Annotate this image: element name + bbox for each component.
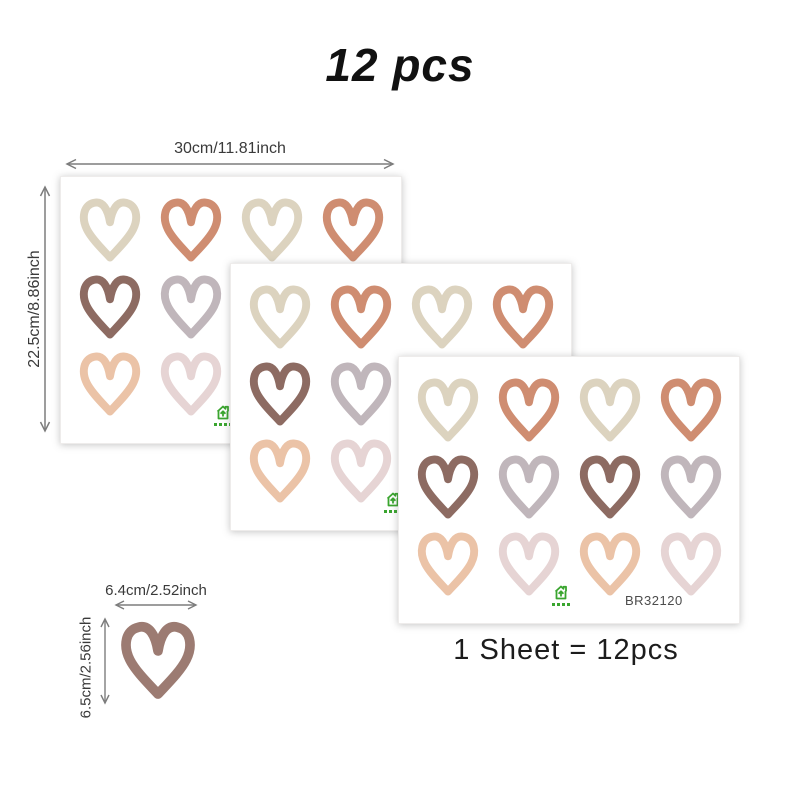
heart-sticker-beige <box>243 279 317 351</box>
heart-sticker-brown <box>573 449 647 521</box>
heart-width-label: 6.4cm/2.52inch <box>96 582 216 599</box>
heart-sticker-terracotta <box>324 279 398 351</box>
product-infographic: 12 pcs 30cm/11.81inch 22.5cm/8.86inch <box>0 0 800 800</box>
hearts-grid <box>407 372 731 603</box>
heart-sticker-terracotta <box>492 372 566 444</box>
sheet-width-label: 30cm/11.81inch <box>60 140 400 158</box>
heart-sticker-mauve <box>654 449 728 521</box>
logo-wordmark <box>549 603 573 606</box>
sheet-footer: BR32120 <box>399 581 739 615</box>
piece-count-title: 12 pcs <box>0 38 800 92</box>
single-heart-sticker <box>114 612 202 704</box>
sticker-sheet-3: BR32120 <box>398 356 740 624</box>
heart-width-arrow <box>110 599 202 611</box>
heart-sticker-beige <box>411 372 485 444</box>
heart-sticker-mauve <box>324 356 398 428</box>
heart-sticker-mauve <box>154 269 228 341</box>
sheet-height-arrow <box>39 180 51 438</box>
house-logo-icon <box>551 583 571 601</box>
heart-sticker-brown <box>73 269 147 341</box>
heart-sticker-terracotta <box>486 279 560 351</box>
heart-sticker-terracotta <box>316 192 390 264</box>
heart-sticker-terracotta <box>154 192 228 264</box>
heart-height-label: 6.5cm/2.56inch <box>78 612 95 724</box>
sheet-count-note: 1 Sheet = 12pcs <box>416 634 716 667</box>
heart-sticker-beige <box>73 192 147 264</box>
product-code: BR32120 <box>625 593 683 608</box>
heart-sticker-brown <box>243 356 317 428</box>
heart-sticker-mauve <box>492 449 566 521</box>
heart-height-arrow <box>99 613 111 709</box>
brand-logo <box>549 583 573 606</box>
heart-sticker-beige <box>573 372 647 444</box>
heart-sticker-beige <box>235 192 309 264</box>
heart-sticker-beige <box>405 279 479 351</box>
heart-sticker-terracotta <box>654 372 728 444</box>
heart-sticker-brown <box>411 449 485 521</box>
sheet-width-arrow <box>60 158 400 170</box>
